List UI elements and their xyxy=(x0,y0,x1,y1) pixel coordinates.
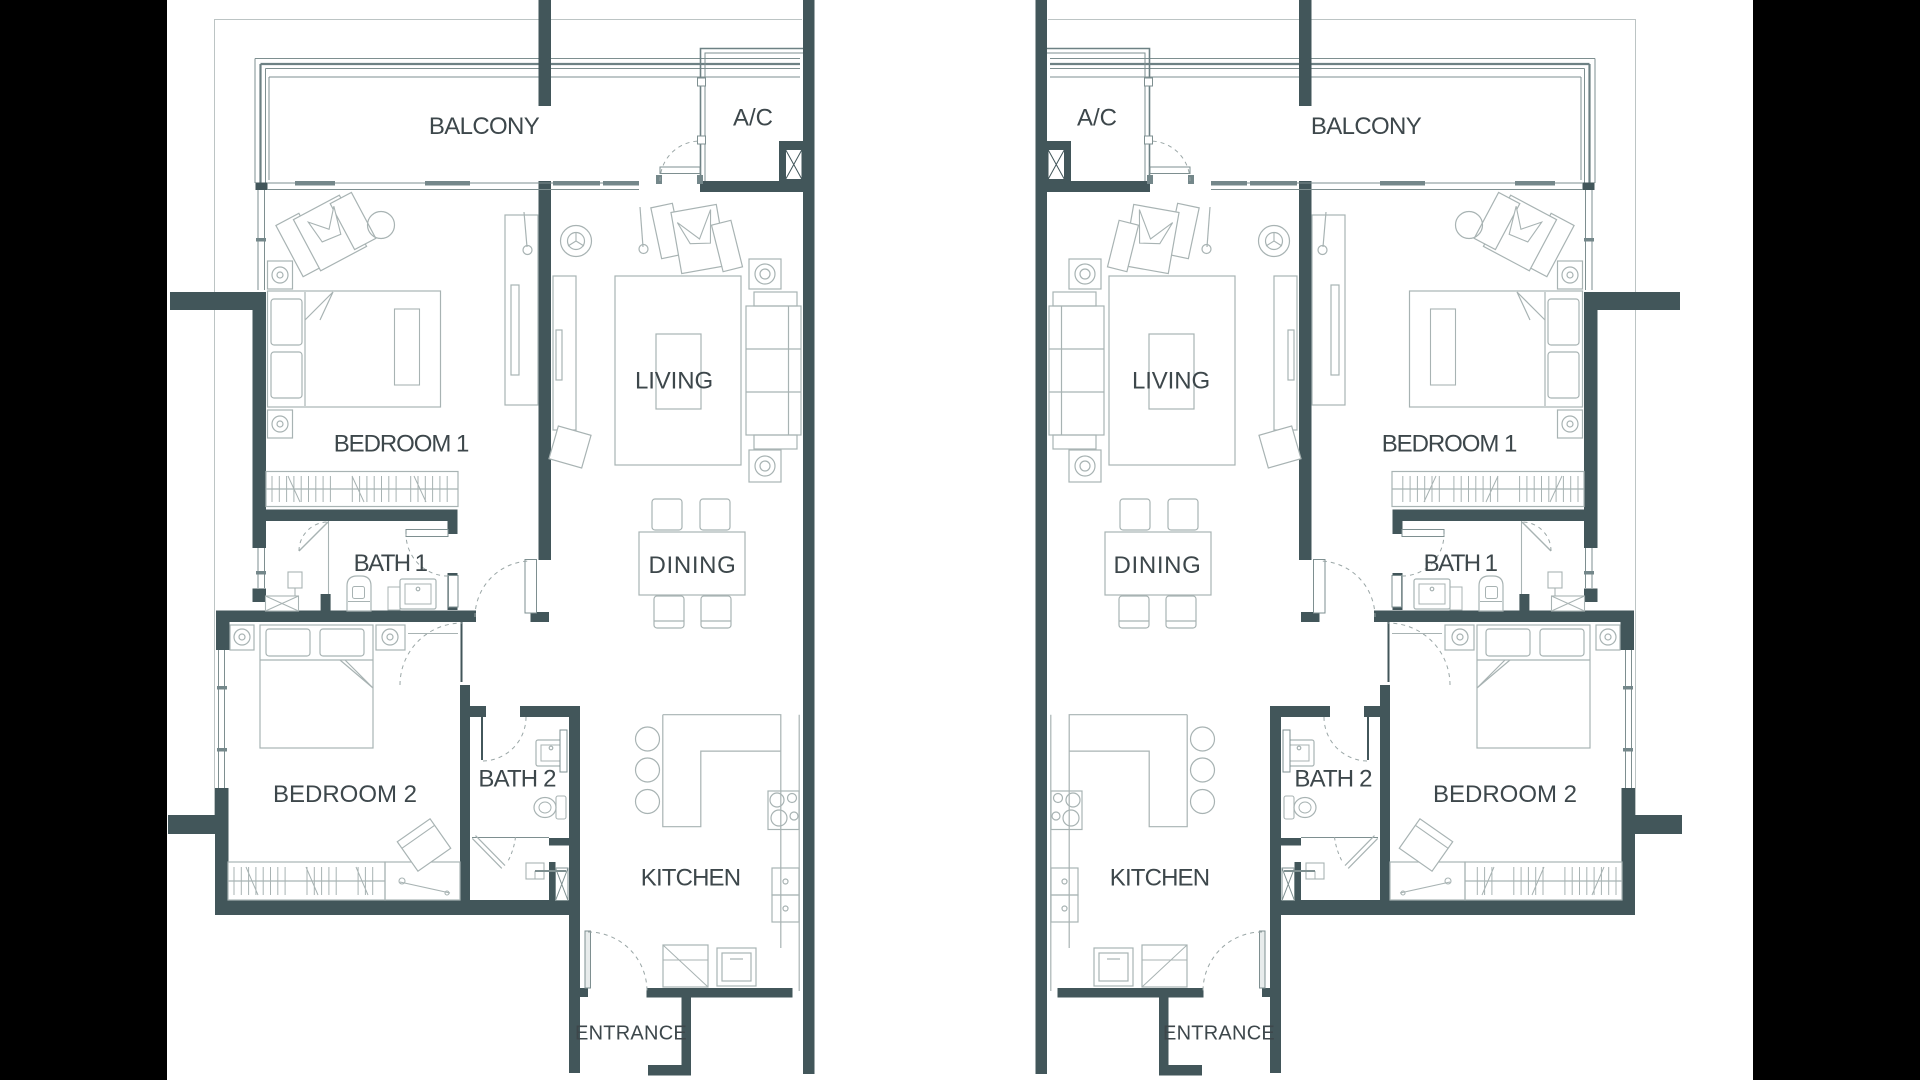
svg-text:BEDROOM 1: BEDROOM 1 xyxy=(1382,431,1517,458)
svg-text:BATH 1: BATH 1 xyxy=(354,550,428,577)
svg-text:BALCONY: BALCONY xyxy=(1311,113,1422,140)
svg-text:LIVING: LIVING xyxy=(1132,368,1210,395)
svg-text:BATH 2: BATH 2 xyxy=(478,765,556,792)
svg-text:LIVING: LIVING xyxy=(635,368,713,395)
svg-text:DINING: DINING xyxy=(1114,552,1202,579)
svg-text:BEDROOM 2: BEDROOM 2 xyxy=(273,781,417,808)
svg-text:KITCHEN: KITCHEN xyxy=(1110,865,1209,892)
svg-text:A/C: A/C xyxy=(733,105,773,132)
svg-text:A/C: A/C xyxy=(1077,105,1117,132)
svg-text:BATH 1: BATH 1 xyxy=(1424,550,1498,577)
svg-text:DINING: DINING xyxy=(649,552,737,579)
svg-text:ENTRANCE: ENTRANCE xyxy=(575,1023,687,1045)
svg-text:BALCONY: BALCONY xyxy=(429,113,540,140)
svg-text:BATH 2: BATH 2 xyxy=(1294,765,1372,792)
svg-text:ENTRANCE: ENTRANCE xyxy=(1163,1023,1275,1045)
svg-text:BEDROOM 2: BEDROOM 2 xyxy=(1433,781,1577,808)
svg-text:KITCHEN: KITCHEN xyxy=(641,865,740,892)
svg-text:BEDROOM 1: BEDROOM 1 xyxy=(334,431,469,458)
